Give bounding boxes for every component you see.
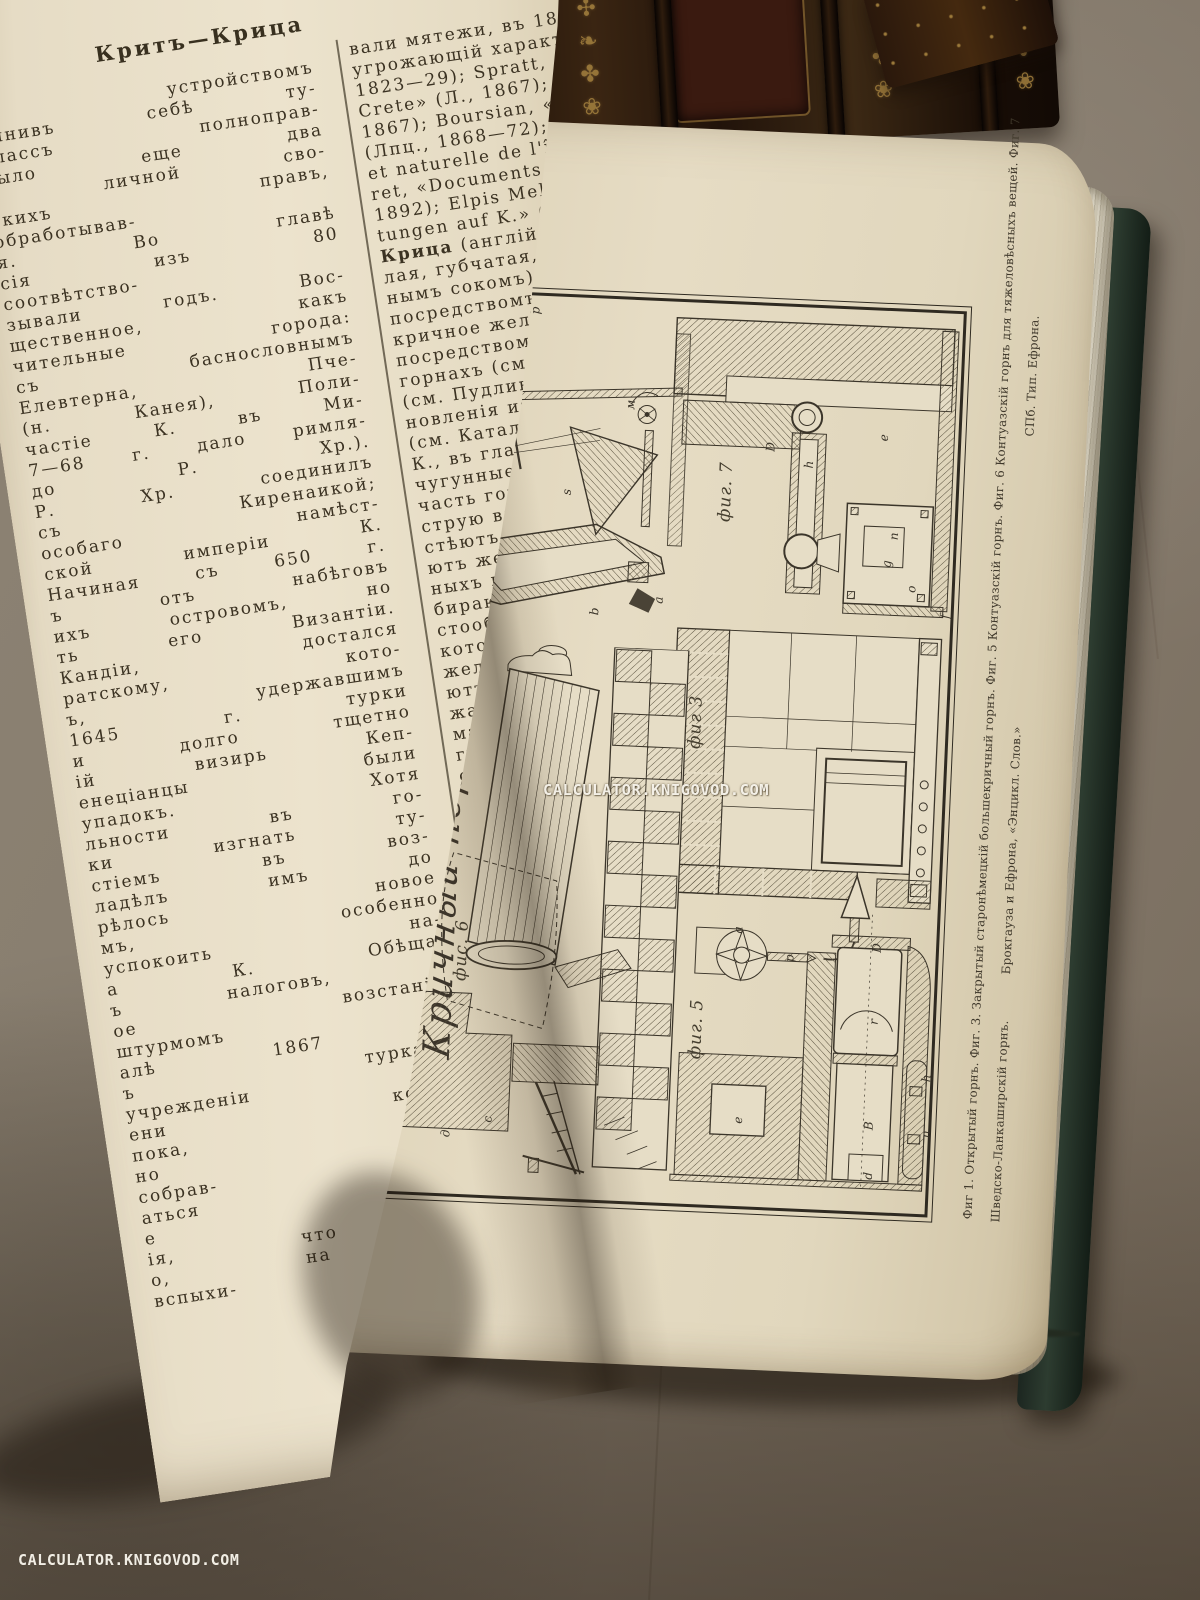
figure-reference-letter: a — [731, 926, 745, 934]
spine-raised-band — [817, 0, 846, 140]
figure-reference-letter: p — [782, 954, 796, 962]
figure-reference-letter: e — [731, 1116, 745, 1124]
figure-reference-letter: h — [919, 1074, 933, 1082]
figure-reference-letter: e — [877, 434, 891, 442]
watermark-center: CALCULATOR.KNIGOVOD.COM — [543, 781, 769, 799]
figure-reference-letter: n — [919, 1130, 933, 1138]
figure-7-lancashire-hearth: Dhengof — [659, 309, 962, 621]
figure-reference-letter: h — [802, 460, 816, 468]
figure-reference-letter: м — [623, 399, 637, 410]
plate-credit-printer: СПб. Тип. Ефрона. — [1023, 315, 1042, 437]
figure-reference-letter: s — [560, 489, 574, 496]
figure-5-contois-hearth: apDreBhnd — [666, 902, 936, 1195]
plate-credit-publisher: Брокгауза и Ефрона, «Энцикл. Слов.» — [999, 726, 1024, 975]
figure-reference-letter: f — [938, 614, 952, 619]
figure-reference-letter: B — [862, 1121, 876, 1130]
figure-3-label: фиг 3 — [685, 694, 707, 749]
figure-reference-letter: o — [904, 585, 918, 593]
figure-reference-letter: c — [480, 1116, 494, 1123]
figure-reference-letter: g — [880, 560, 894, 568]
figure-6-label: фис. 6 — [450, 919, 473, 981]
figure-reference-letter: d — [861, 1172, 875, 1180]
spine-title-label — [668, 0, 808, 121]
figure-reference-letter: n — [887, 532, 901, 540]
figure-reference-letter: b — [587, 607, 601, 615]
watermark-bottom-left: CALCULATOR.KNIGOVOD.COM — [18, 1551, 240, 1569]
figure-reference-letter: D — [763, 442, 777, 452]
figure-7-label: фиг. 7 — [715, 461, 738, 522]
plate-caption-continuation: Шведско-Ланкаширскій горнъ. — [988, 1020, 1011, 1223]
figure-5-label: фиг. 5 — [685, 998, 708, 1059]
photo-of-open-encyclopedia: ❦✣❧✤❀ ❦✣❧✤❀ ❦✣❧✤❀ ❦✣❧✤❀ ❦✣❧✤❀ Кричный пе… — [0, 0, 1200, 1600]
figure-reference-letter: D — [870, 943, 884, 953]
page-header: Критъ—Крица — [93, 11, 305, 67]
figure-reference-letter: r — [867, 1019, 881, 1025]
figure-reference-letter: д — [438, 1129, 452, 1137]
